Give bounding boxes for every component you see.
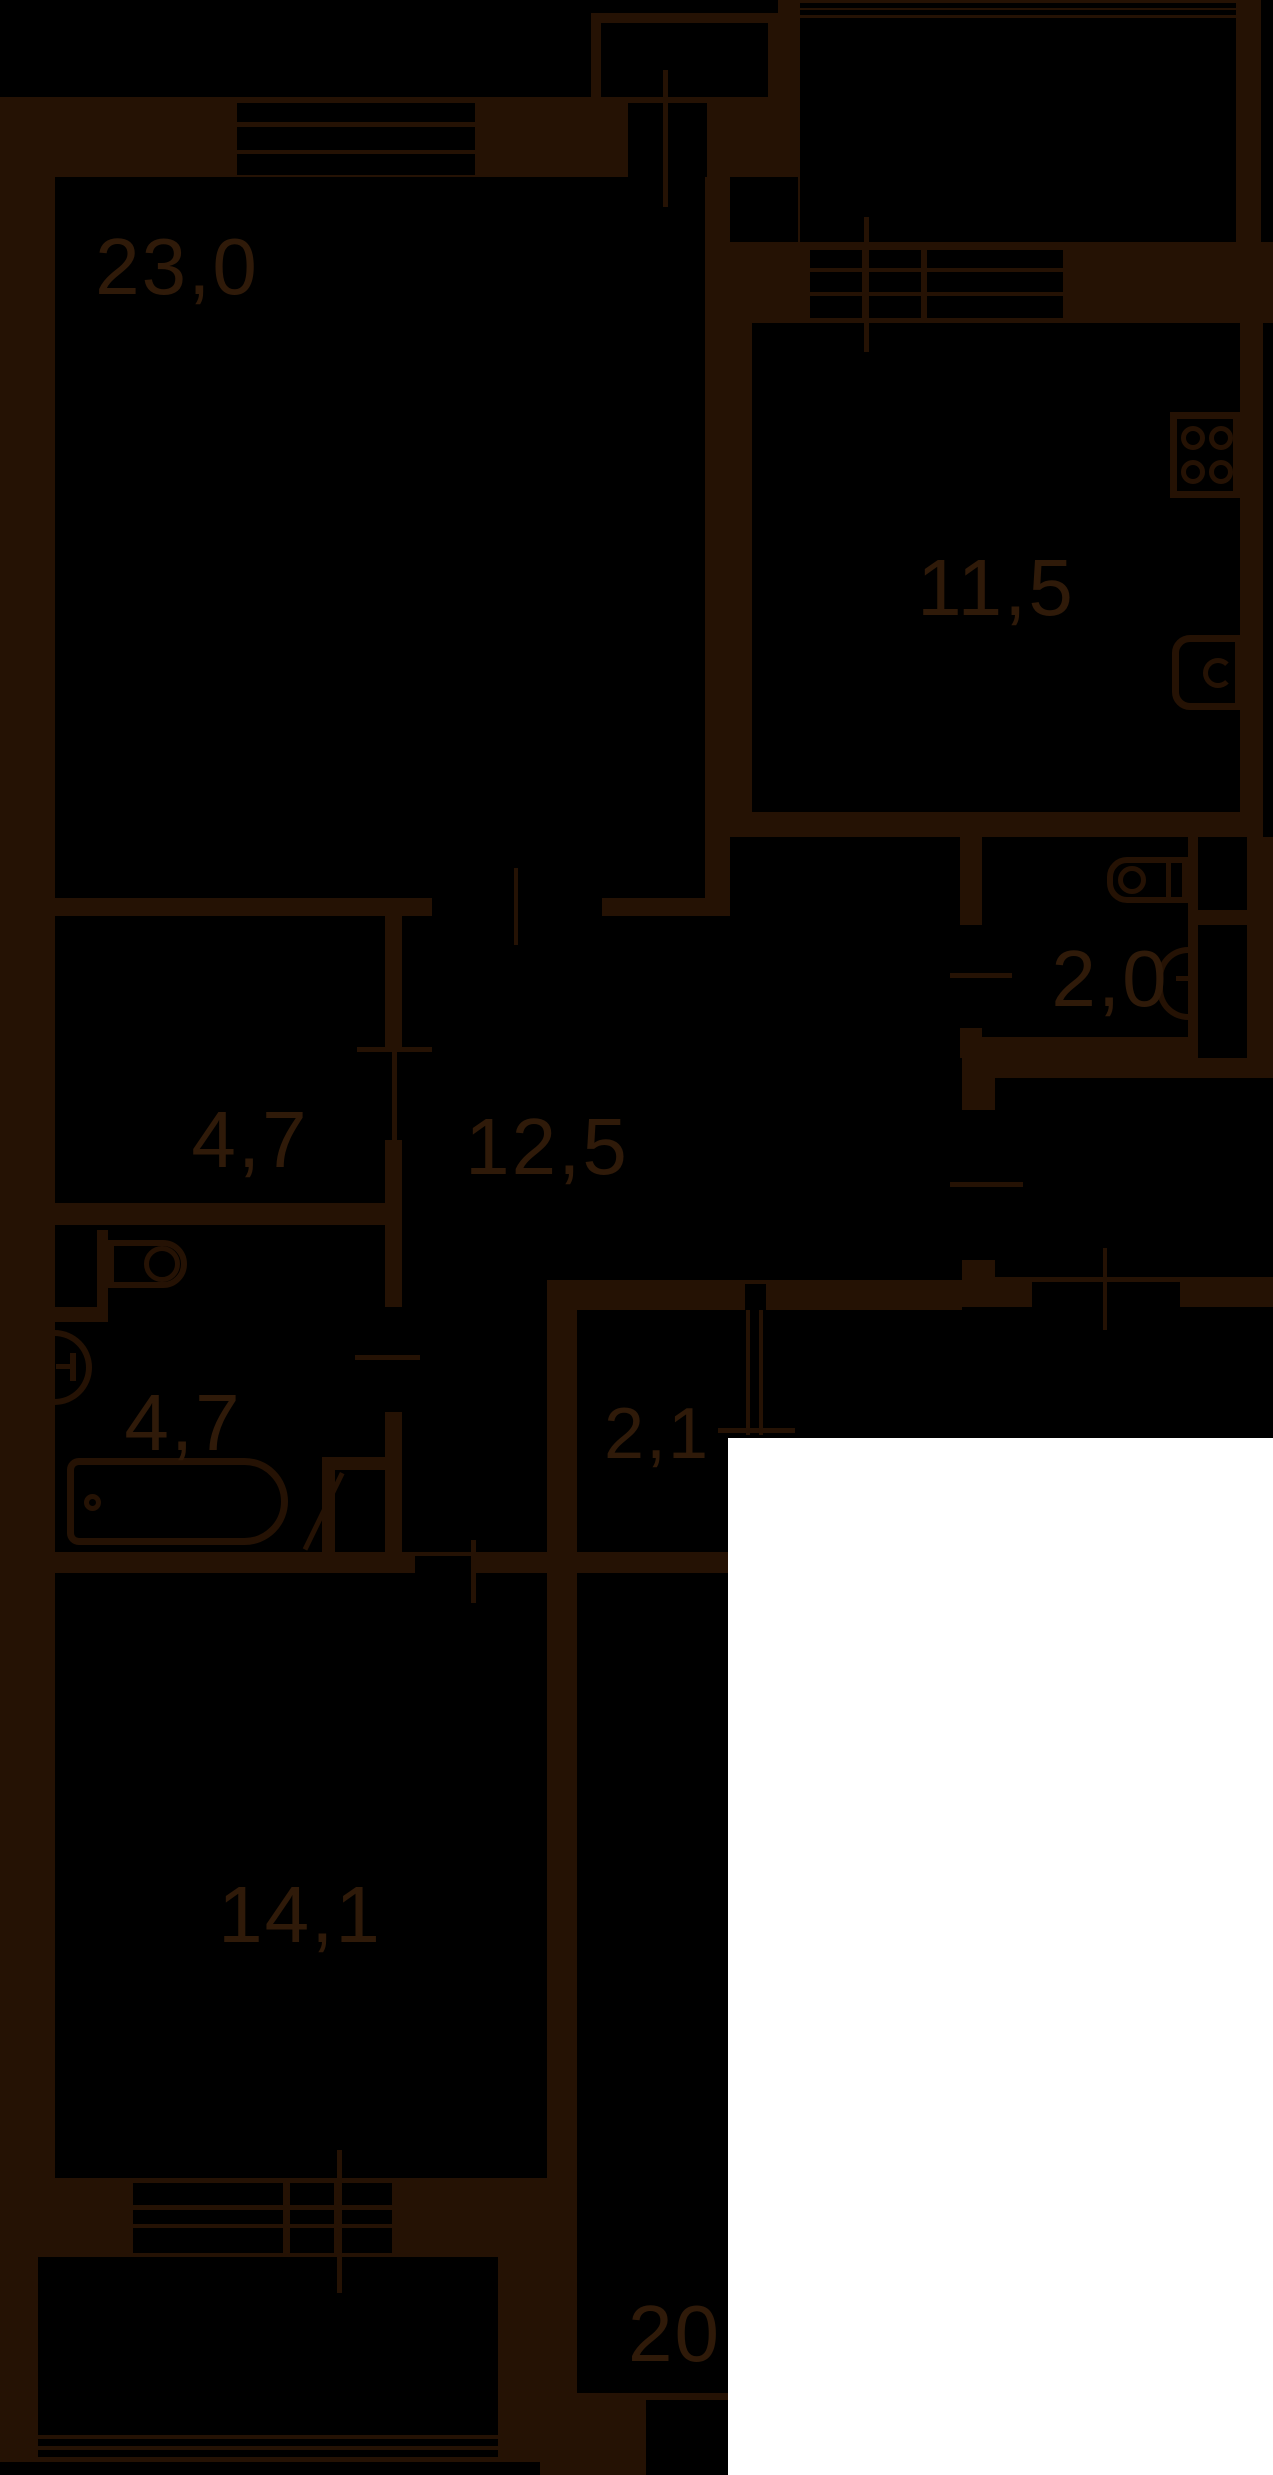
duct-wall bbox=[55, 1307, 108, 1322]
window-icon bbox=[646, 2445, 728, 2472]
tick-mark bbox=[663, 70, 668, 207]
window-icon bbox=[133, 2228, 392, 2253]
room-area-label-living: 23,0 bbox=[95, 227, 259, 307]
stove-burner-icon bbox=[1181, 426, 1205, 450]
window-icon bbox=[237, 127, 475, 150]
tick-mark bbox=[864, 217, 869, 352]
wall bbox=[55, 1203, 388, 1225]
wall bbox=[962, 1078, 995, 1110]
balcony-wall bbox=[0, 2180, 38, 2462]
window-icon bbox=[646, 2400, 728, 2420]
wall bbox=[960, 1037, 1198, 1058]
wall bbox=[718, 323, 752, 837]
room-area-label-kitchen: 11,5 bbox=[917, 548, 1075, 628]
door-jamb-line bbox=[759, 1310, 763, 1435]
tick-mark bbox=[950, 1182, 1023, 1187]
tick-mark bbox=[718, 1428, 795, 1433]
window-icon bbox=[646, 2425, 728, 2440]
door-opening bbox=[415, 1556, 472, 1573]
window-icon bbox=[237, 154, 475, 175]
tick-mark bbox=[337, 2150, 342, 2293]
tick-mark bbox=[950, 973, 1012, 978]
wall bbox=[385, 1412, 402, 1555]
window-icon bbox=[133, 2183, 392, 2205]
room-area-label-hallway: 12,5 bbox=[465, 1107, 629, 1187]
window-icon bbox=[810, 296, 1063, 318]
wall bbox=[335, 1457, 388, 1470]
balcony-rail-line bbox=[38, 2450, 498, 2457]
wall bbox=[385, 1240, 402, 1307]
wall bbox=[540, 2393, 646, 2475]
window-icon bbox=[810, 272, 1063, 292]
window-icon bbox=[810, 250, 1063, 268]
bathroom-sink-bowl-icon bbox=[144, 1246, 180, 1282]
shaft-divider bbox=[1198, 910, 1247, 925]
balcony-top-interior bbox=[601, 23, 768, 97]
room-area-label-storage: 4,7 bbox=[191, 1100, 308, 1180]
wall bbox=[962, 1058, 1273, 1078]
wall bbox=[1240, 323, 1263, 837]
wall bbox=[55, 1552, 728, 1573]
wall bbox=[0, 97, 55, 2180]
window-mullion bbox=[283, 2183, 290, 2253]
loggia-rail-line bbox=[800, 3, 1236, 8]
tick-mark bbox=[514, 868, 518, 945]
wall bbox=[718, 812, 1263, 837]
tick-mark bbox=[1103, 1248, 1107, 1330]
toilet-tank-line bbox=[56, 1364, 72, 1369]
room-area-label-niche: 2,1 bbox=[604, 1398, 710, 1470]
washing-machine-panel-line bbox=[1166, 857, 1171, 903]
room-area-label-wc: 2,0 bbox=[1051, 939, 1168, 1019]
wall bbox=[385, 916, 402, 1047]
stove-burner-icon bbox=[1209, 426, 1233, 450]
white-overlay bbox=[728, 1438, 1273, 2475]
bathtub-drain-icon bbox=[84, 1494, 101, 1511]
loggia-rail-line bbox=[800, 10, 1236, 15]
faucet-icon bbox=[1203, 658, 1233, 688]
door-opening bbox=[745, 1284, 766, 1310]
loggia-interior bbox=[800, 18, 1236, 242]
window-icon bbox=[237, 103, 475, 122]
room-area-label-bathroom: 4,7 bbox=[124, 1383, 241, 1463]
wc-sink-tap-icon bbox=[1176, 976, 1188, 981]
door-jamb-line bbox=[392, 1047, 397, 1140]
door-jamb-line bbox=[746, 1310, 750, 1435]
window-icon bbox=[133, 2210, 392, 2224]
wall bbox=[1188, 837, 1198, 1037]
balcony-rail-line bbox=[38, 2439, 498, 2446]
wall bbox=[55, 898, 432, 916]
room-area-label-bedroom: 14,1 bbox=[218, 1875, 382, 1955]
tick-mark bbox=[355, 1355, 420, 1360]
wall bbox=[960, 837, 982, 925]
entry-passage bbox=[730, 177, 798, 242]
window-mullion bbox=[921, 250, 927, 318]
duct-wall bbox=[97, 1230, 108, 1307]
stove-icon bbox=[1170, 412, 1240, 498]
wall bbox=[602, 898, 730, 916]
tick-mark bbox=[471, 1540, 476, 1603]
wall bbox=[385, 1140, 402, 1240]
washing-machine-door-icon bbox=[1118, 866, 1146, 894]
stove-burner-icon bbox=[1209, 460, 1233, 484]
wall bbox=[962, 1260, 995, 1277]
stove-burner-icon bbox=[1181, 460, 1205, 484]
floor-plan: 23,0 11,5 2,0 4,7 12,5 4,7 2,1 14,1 20, bbox=[0, 0, 1273, 2475]
wall bbox=[1247, 837, 1273, 1078]
